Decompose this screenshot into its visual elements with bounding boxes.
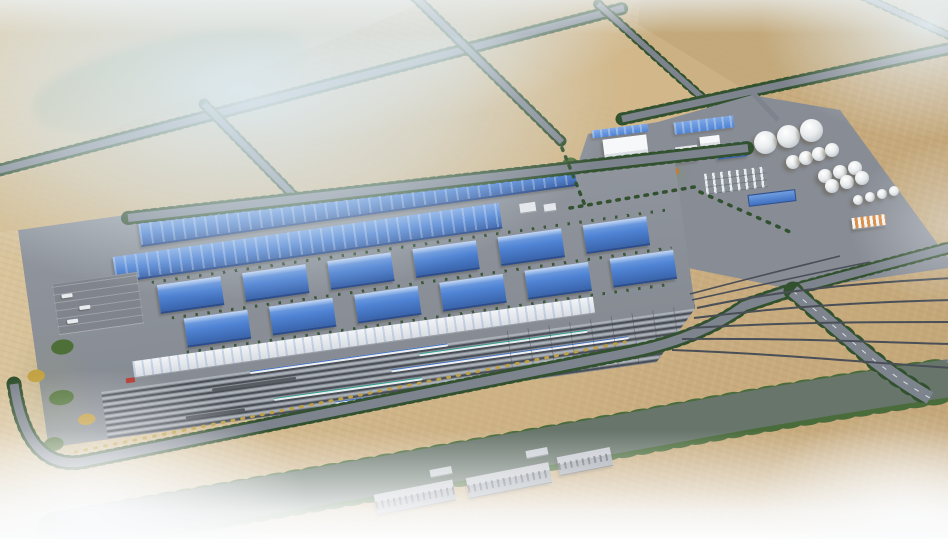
apron-tree-row bbox=[700, 192, 790, 232]
campus-tree-row bbox=[562, 148, 586, 208]
treeline bbox=[14, 289, 795, 463]
depot-north-road bbox=[128, 148, 748, 218]
aerial-rendering bbox=[0, 0, 948, 539]
fan-track bbox=[682, 339, 948, 344]
fan-track bbox=[672, 350, 948, 368]
rail-and-perimeter bbox=[0, 0, 948, 539]
tank-farm-access-road bbox=[752, 92, 778, 120]
depot-south-road bbox=[14, 289, 795, 463]
campus-tree-row bbox=[570, 186, 700, 208]
shrub-row bbox=[75, 342, 625, 452]
